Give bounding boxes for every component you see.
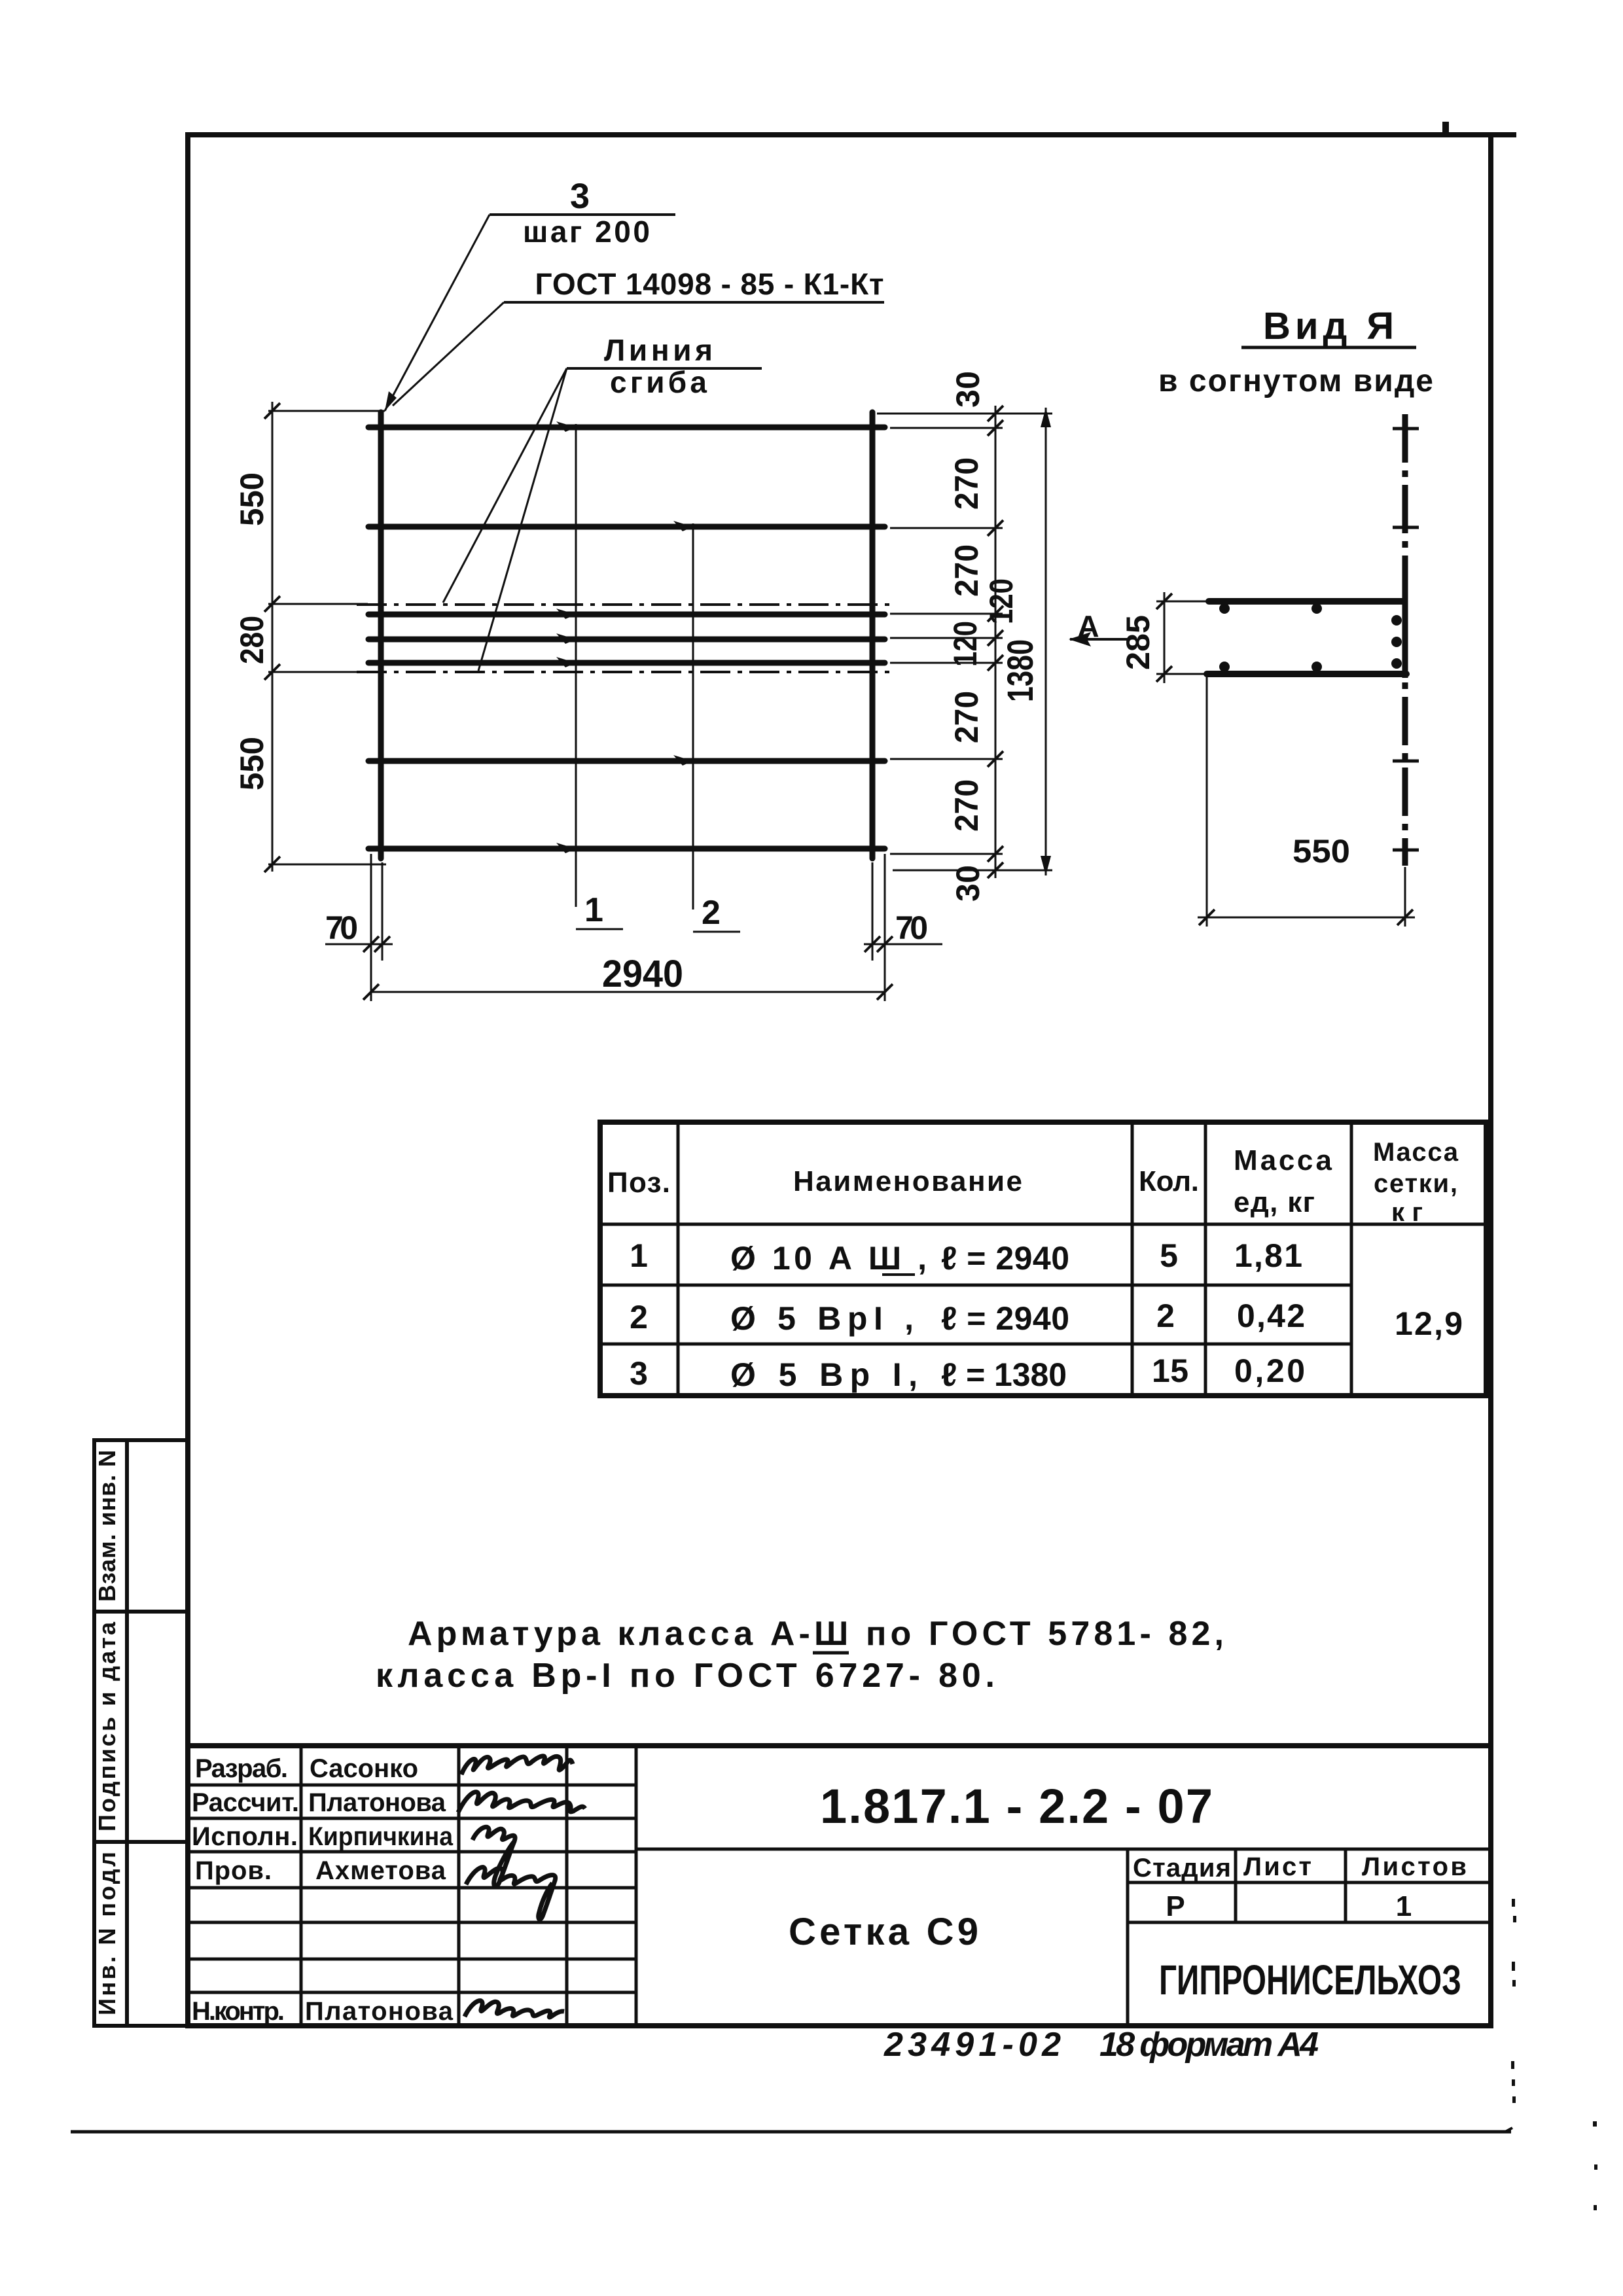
svg-text:550: 550 [1293, 833, 1350, 870]
svg-text:Рассчит.: Рассчит. [192, 1788, 299, 1817]
svg-text:Подпись и дата: Подпись и дата [94, 1621, 120, 1831]
svg-text:3: 3 [570, 177, 590, 216]
svg-text:Взам. инв. N: Взам. инв. N [94, 1450, 120, 1602]
svg-text:ℓ = 2940: ℓ = 2940 [941, 1300, 1069, 1337]
svg-text:2: 2 [630, 1299, 648, 1335]
svg-text:в согнутом виде: в согнутом виде [1158, 364, 1433, 398]
svg-text:Пров.: Пров. [195, 1856, 272, 1885]
svg-text:550: 550 [234, 472, 270, 526]
svg-text:Кирпичкина: Кирпичкина [308, 1822, 454, 1851]
svg-text:ℓ = 1380: ℓ = 1380 [941, 1356, 1067, 1393]
svg-text:280: 280 [234, 616, 270, 664]
svg-text:15: 15 [1152, 1352, 1188, 1389]
svg-text:Поз.: Поз. [607, 1167, 670, 1199]
svg-text:Кол.: Кол. [1139, 1165, 1199, 1197]
svg-text:Ахметова: Ахметова [315, 1856, 446, 1885]
svg-text:70: 70 [895, 910, 928, 946]
svg-text:1: 1 [1396, 1890, 1412, 1922]
svg-text:1380: 1380 [999, 639, 1041, 702]
svg-text:2: 2 [1156, 1298, 1175, 1334]
svg-text:Масса: Масса [1373, 1138, 1459, 1167]
svg-text:550: 550 [234, 737, 270, 790]
svg-text:270: 270 [948, 457, 985, 510]
svg-text:120: 120 [983, 578, 1020, 624]
svg-text:Исполн.: Исполн. [192, 1822, 298, 1851]
svg-text:3: 3 [630, 1355, 648, 1392]
svg-text:0,20: 0,20 [1234, 1352, 1305, 1389]
svg-text:1.817.1 - 2.2 - 07: 1.817.1 - 2.2 - 07 [820, 1779, 1213, 1833]
svg-text:Вид Я: Вид Я [1263, 305, 1394, 347]
svg-text:1: 1 [630, 1237, 648, 1274]
svg-text:Н.контр.: Н.контр. [192, 1997, 285, 2026]
svg-text:Платонова: Платонова [305, 1997, 454, 2026]
svg-text:ℓ = 2940: ℓ = 2940 [941, 1240, 1069, 1277]
svg-text:285: 285 [1120, 615, 1156, 670]
svg-text:70: 70 [325, 910, 358, 946]
svg-text:23491-02: 23491-02 [883, 2026, 1061, 2064]
svg-text:Разраб.: Разраб. [195, 1754, 288, 1783]
svg-text:Р: Р [1166, 1890, 1185, 1922]
svg-text:270: 270 [948, 691, 985, 743]
svg-text:Ø 10 А Ш ,: Ø 10 А Ш , [730, 1240, 927, 1277]
svg-text:Линия: Линия [604, 333, 713, 367]
svg-text:5: 5 [1160, 1237, 1178, 1274]
svg-text:2: 2 [702, 894, 721, 932]
svg-text:сгиба: сгиба [610, 365, 707, 399]
svg-text:12,9: 12,9 [1395, 1305, 1463, 1342]
svg-text:Сасонко: Сасонко [310, 1754, 418, 1783]
svg-text:1: 1 [584, 891, 603, 929]
svg-text:А: А [1077, 609, 1099, 643]
svg-text:Наименование: Наименование [793, 1165, 1022, 1197]
svg-text:0,42: 0,42 [1237, 1298, 1305, 1334]
svg-text:ГОСТ 14098 - 85 - К1-Кт: ГОСТ 14098 - 85 - К1-Кт [535, 267, 884, 301]
svg-text:Листов: Листов [1362, 1852, 1467, 1881]
svg-text:сетки,: сетки, [1374, 1169, 1457, 1198]
svg-text:Стадия: Стадия [1133, 1854, 1231, 1882]
svg-text:ед, кг: ед, кг [1234, 1186, 1315, 1218]
svg-text:Инв. N подл: Инв. N подл [94, 1852, 120, 2015]
svg-text:30: 30 [950, 865, 986, 902]
svg-text:270: 270 [948, 779, 985, 832]
svg-text:Лист: Лист [1243, 1852, 1311, 1881]
svg-text:Масса: Масса [1234, 1144, 1332, 1176]
svg-text:ГИПРОНИСЕЛЬХОЗ: ГИПРОНИСЕЛЬХОЗ [1159, 1956, 1461, 2004]
svg-text:Платонова: Платонова [308, 1788, 446, 1817]
svg-text:1,81: 1,81 [1234, 1237, 1302, 1274]
svg-text:30: 30 [950, 371, 986, 408]
svg-text:2940: 2940 [602, 953, 683, 995]
svg-text:270: 270 [948, 544, 985, 597]
svg-text:120: 120 [947, 621, 984, 667]
svg-text:18 формат А4: 18 формат А4 [1099, 2026, 1319, 2064]
